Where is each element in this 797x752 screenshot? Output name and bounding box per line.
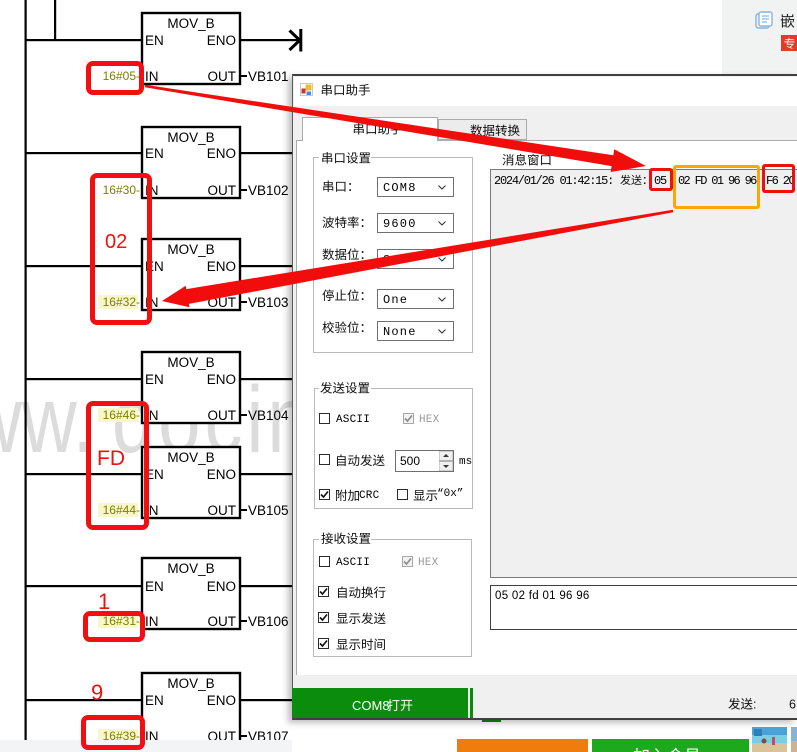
svg-text:MOV_B: MOV_B — [167, 242, 214, 257]
svg-text:VB104: VB104 — [248, 408, 289, 423]
svg-text:ENO: ENO — [207, 259, 236, 274]
svg-text:EN: EN — [145, 146, 164, 161]
svg-text:IN: IN — [145, 614, 159, 629]
svg-text:ENO: ENO — [207, 579, 236, 594]
svg-text:MOV_B: MOV_B — [167, 16, 214, 31]
svg-text:MOV_B: MOV_B — [167, 355, 214, 370]
svg-text:ENO: ENO — [207, 33, 236, 48]
svg-text:OUT: OUT — [208, 295, 237, 310]
svg-text:EN: EN — [145, 372, 164, 387]
svg-text:VB105: VB105 — [248, 503, 289, 518]
svg-text:OUT: OUT — [208, 69, 237, 84]
svg-text:MOV_B: MOV_B — [167, 561, 214, 576]
svg-text:IN: IN — [145, 69, 159, 84]
svg-text:OUT: OUT — [208, 183, 237, 198]
svg-text:EN: EN — [145, 33, 164, 48]
svg-text:VB106: VB106 — [248, 614, 289, 629]
svg-text:EN: EN — [145, 693, 164, 708]
svg-text:EN: EN — [145, 579, 164, 594]
svg-text:VB103: VB103 — [248, 295, 289, 310]
svg-text:ENO: ENO — [207, 372, 236, 387]
svg-text:VB101: VB101 — [248, 69, 289, 84]
svg-text:OUT: OUT — [208, 408, 237, 423]
svg-text:MOV_B: MOV_B — [167, 450, 214, 465]
svg-text:ENO: ENO — [207, 146, 236, 161]
svg-text:OUT: OUT — [208, 614, 237, 629]
svg-text:ENO: ENO — [207, 693, 236, 708]
svg-text:OUT: OUT — [208, 503, 237, 518]
svg-text:ENO: ENO — [207, 467, 236, 482]
svg-text:VB102: VB102 — [248, 183, 289, 198]
svg-text:MOV_B: MOV_B — [167, 676, 214, 691]
svg-text:MOV_B: MOV_B — [167, 130, 214, 145]
